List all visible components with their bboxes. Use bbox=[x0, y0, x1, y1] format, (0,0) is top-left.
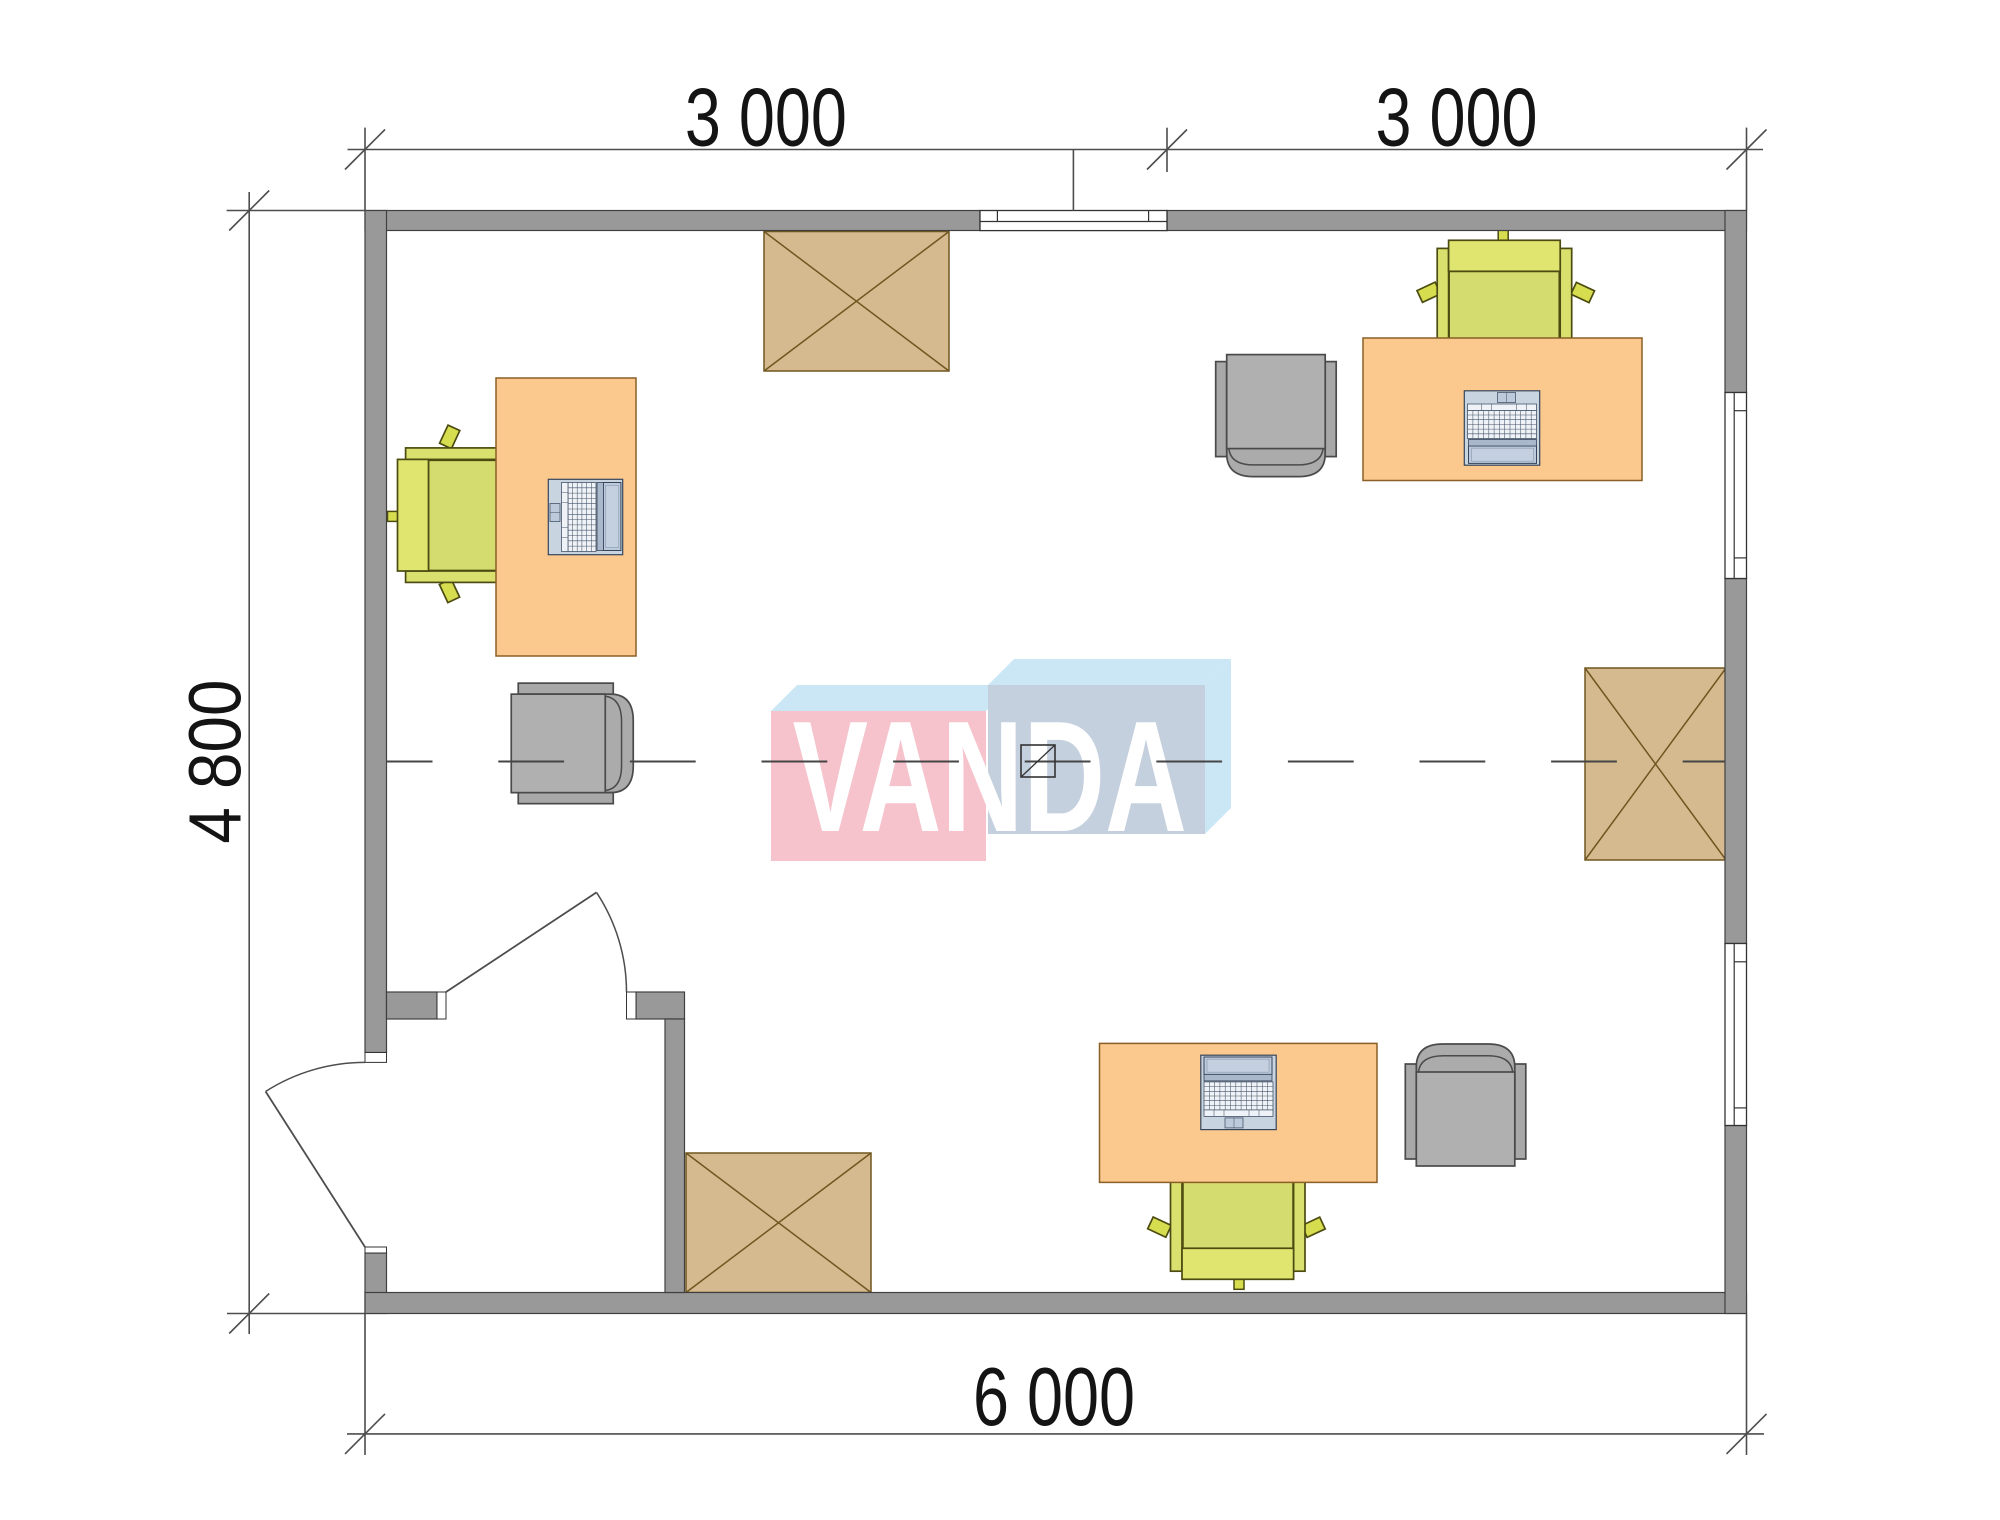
svg-text:VANDA: VANDA bbox=[793, 690, 1187, 866]
svg-text:4 800: 4 800 bbox=[174, 680, 257, 844]
svg-text:3 000: 3 000 bbox=[685, 71, 847, 164]
svg-text:6 000: 6 000 bbox=[973, 1350, 1135, 1443]
svg-text:3 000: 3 000 bbox=[1376, 71, 1538, 164]
